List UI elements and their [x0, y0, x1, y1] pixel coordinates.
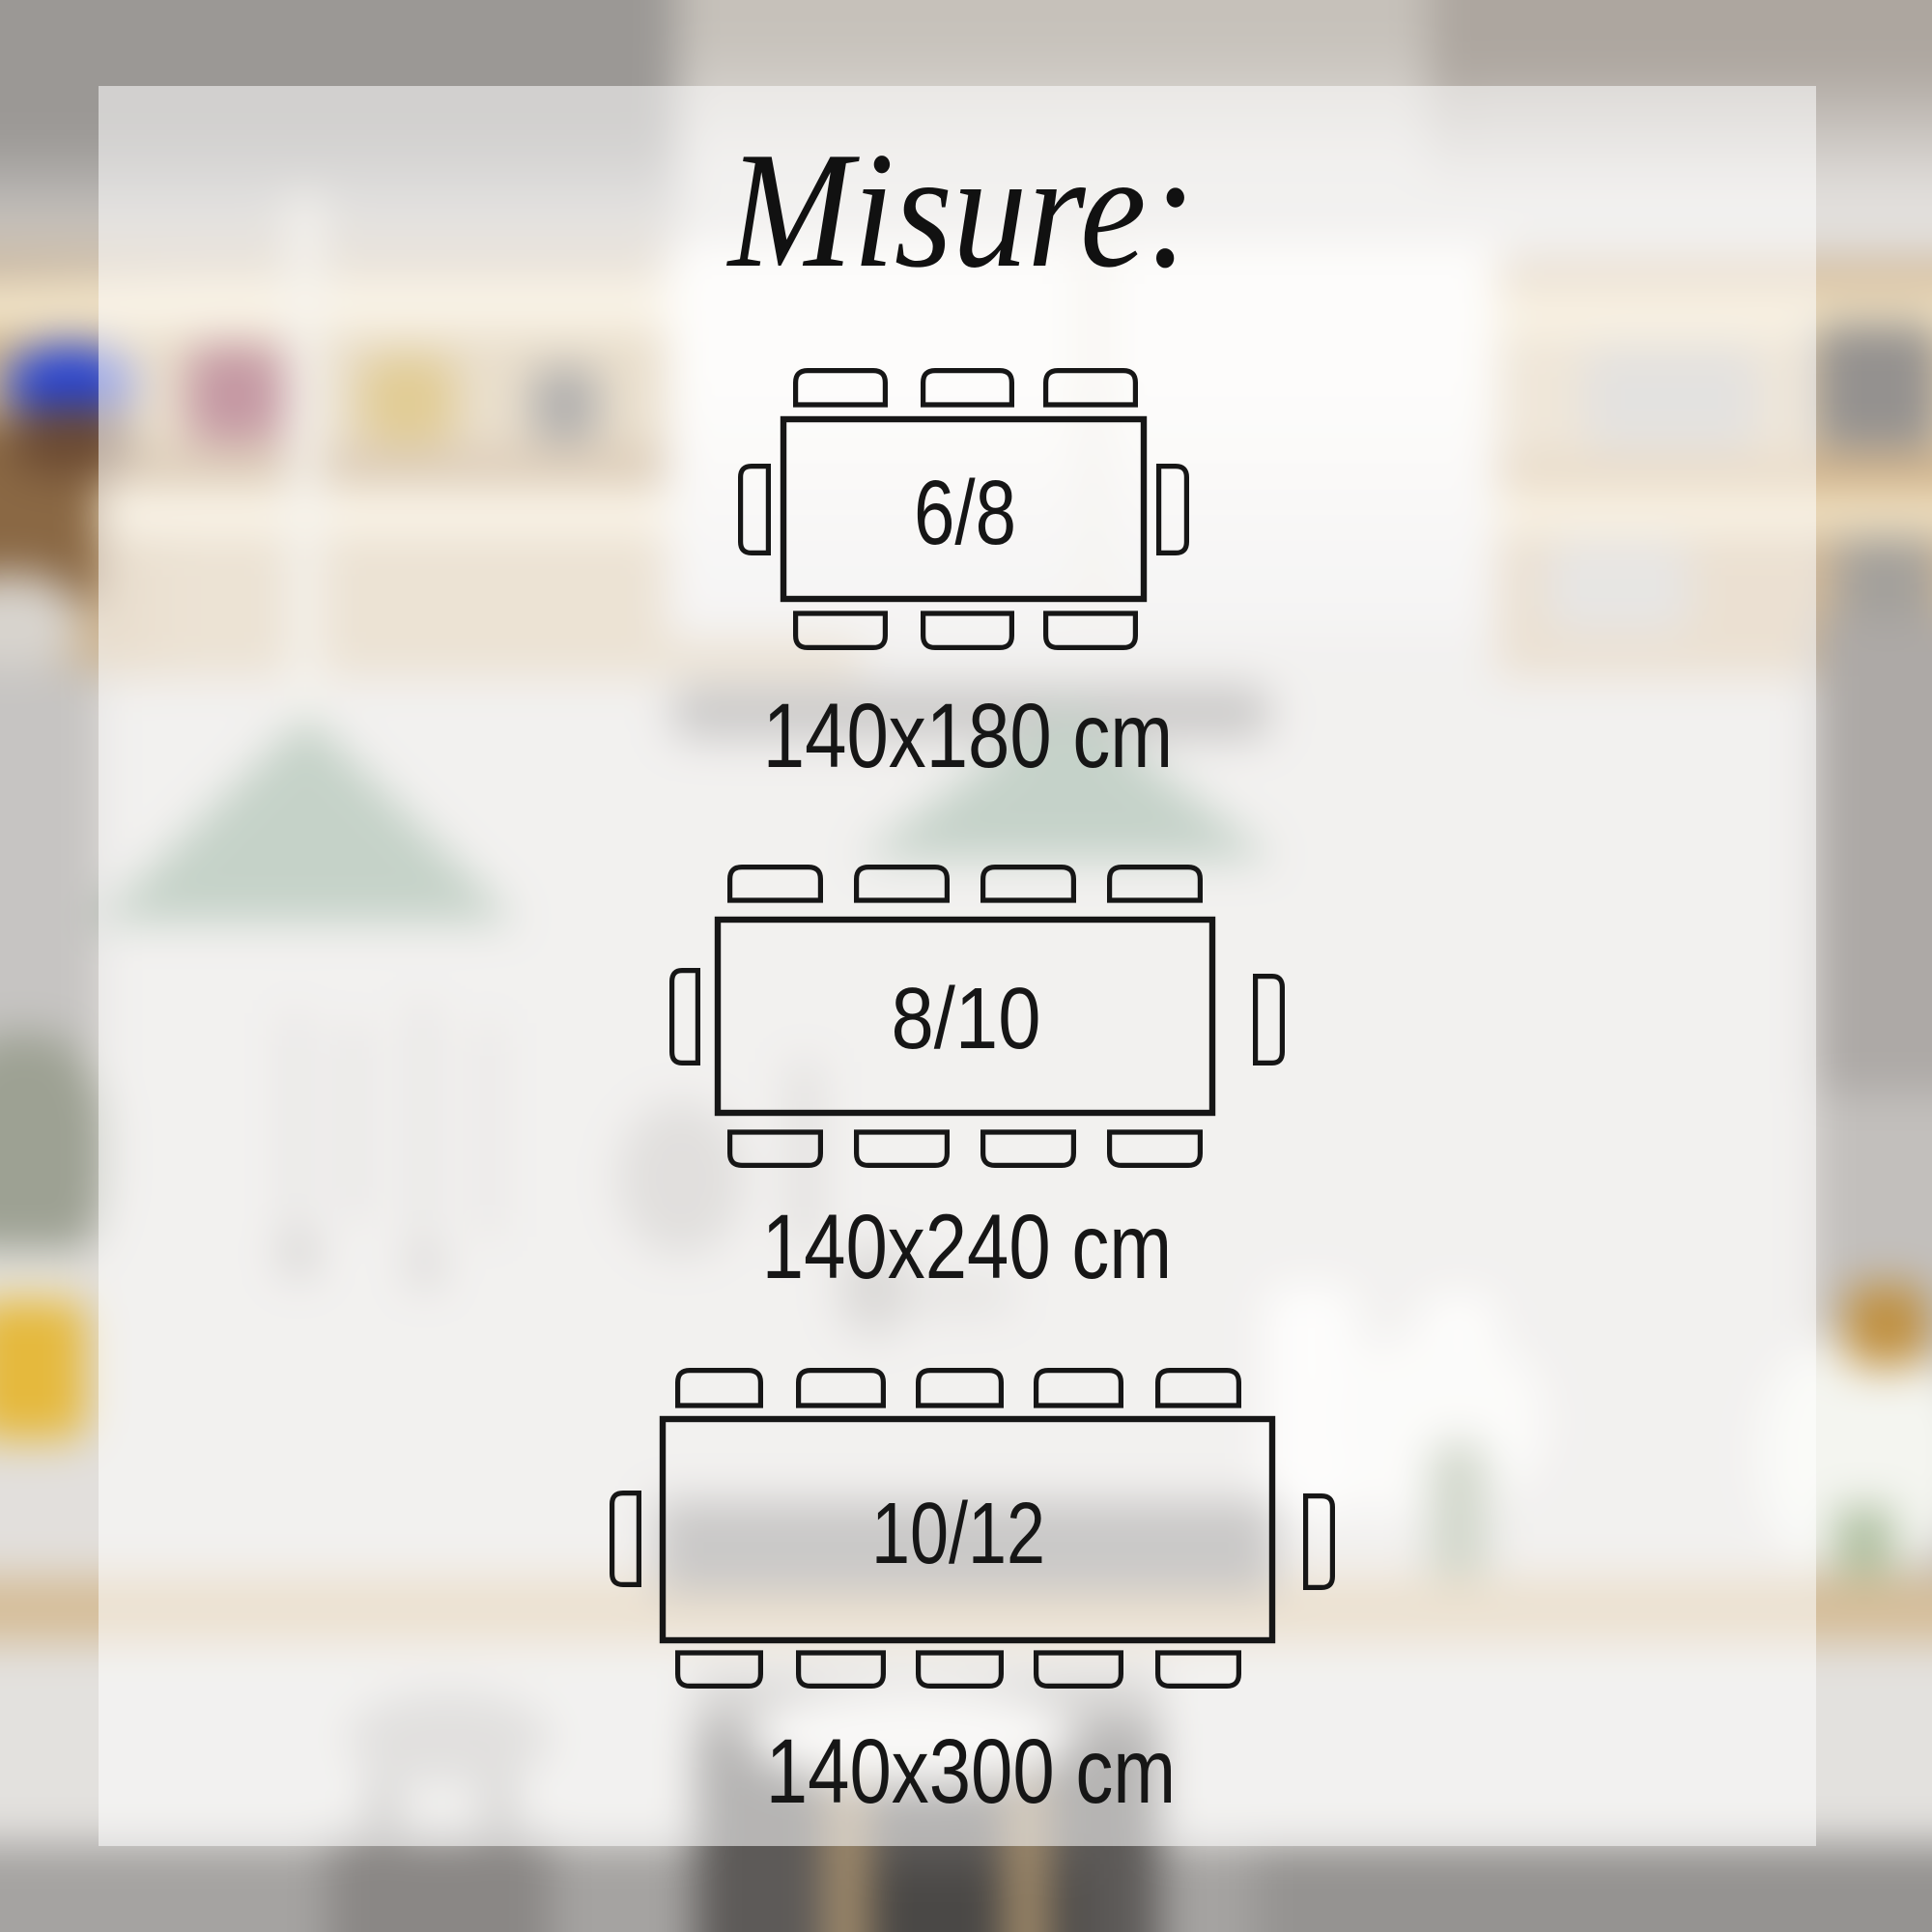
svg-text:10/12: 10/12	[871, 1486, 1045, 1582]
svg-text:6/8: 6/8	[914, 462, 1016, 564]
svg-text:8/10: 8/10	[892, 971, 1041, 1067]
